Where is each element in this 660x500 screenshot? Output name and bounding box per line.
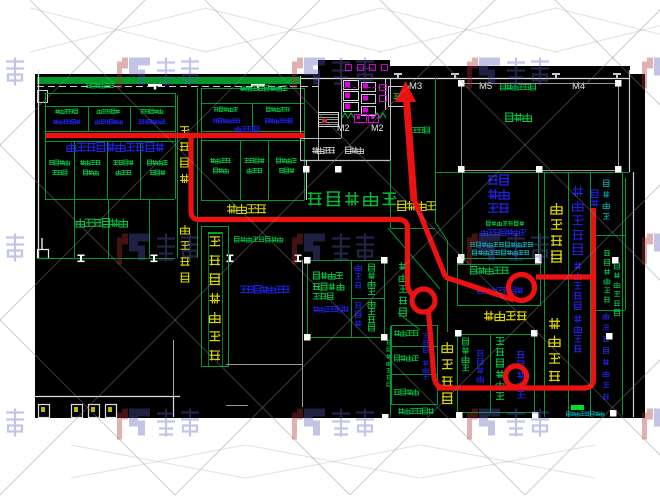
svg-text:M3: M3	[409, 81, 422, 92]
svg-text:M2: M2	[371, 123, 384, 133]
svg-text:M2: M2	[337, 123, 350, 133]
